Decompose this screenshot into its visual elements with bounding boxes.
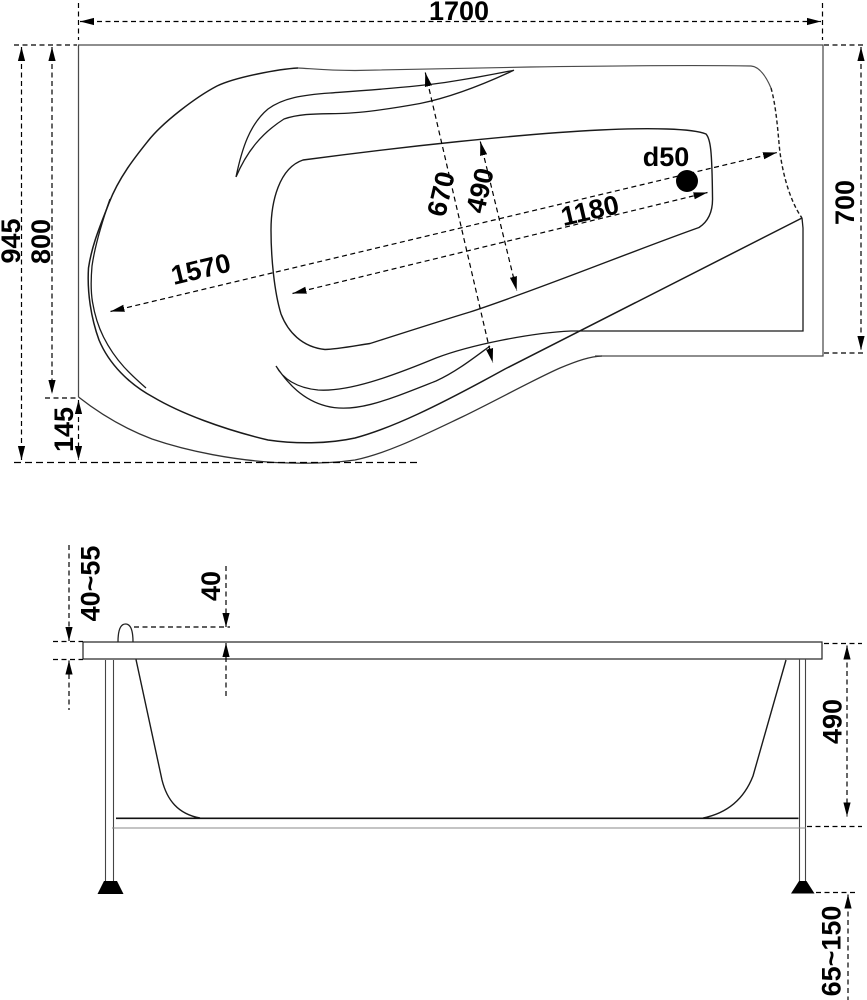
svg-text:145: 145 <box>49 407 79 452</box>
svg-text:d50: d50 <box>643 142 690 172</box>
svg-text:1570: 1570 <box>168 248 233 291</box>
svg-text:490: 490 <box>818 699 848 744</box>
svg-text:1700: 1700 <box>429 0 489 26</box>
svg-text:1180: 1180 <box>558 190 622 232</box>
svg-text:700: 700 <box>830 180 860 225</box>
svg-text:40~55: 40~55 <box>76 546 106 622</box>
svg-text:40: 40 <box>196 571 226 601</box>
svg-text:490: 490 <box>461 165 500 216</box>
svg-text:65~150: 65~150 <box>817 906 847 997</box>
svg-text:800: 800 <box>26 219 56 264</box>
svg-text:945: 945 <box>0 218 26 263</box>
svg-text:670: 670 <box>422 169 461 220</box>
